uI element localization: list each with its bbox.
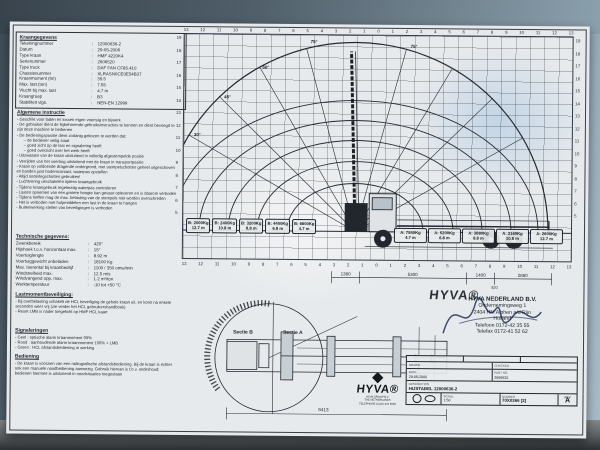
angle-label-45: 45° [224,94,231,99]
drawn-row: DRAWN CHECKED [407,361,577,370]
scale-tick: 4 [434,29,436,34]
rev-cell: REV A [557,394,576,405]
capacity-reach: 8.8 m [241,226,262,232]
dim-1380: 1380 [341,271,352,276]
capacity-reach: 10.8 m [214,226,235,232]
row-label: Werktemperatuur [15,282,87,289]
scale-label: SCALE [444,394,498,399]
revision-cell [520,357,577,362]
scale-tick: 9 [505,30,507,35]
scale-tick: 10 [233,27,238,32]
scale-tick: 6 [463,29,465,34]
scale-tick: 4 [432,263,434,268]
scale-tick: 10 [231,261,236,266]
row-value: -10 tot +50 °C [93,283,120,289]
scale-tick: 4 [321,28,323,33]
scale-tick: 9 [176,160,181,165]
scale-value: 1:50 [443,399,450,403]
scale-tick: 2 [349,28,351,33]
scale-tick: 8 [574,176,579,181]
capacity-reach: 10.8 m [498,236,527,242]
crane-data-rows: Tekeningnummer : 12000636-2 Datum : 29-0… [19,41,183,107]
scale-tick: 13 [575,113,580,118]
scale-tick: 11 [575,138,580,143]
angle-label-30: 30° [194,132,201,137]
scale-tick: 7 [477,30,479,35]
crane-data-row: Stabiliteit vlgs. : NEN-EN 12999 [19,100,182,107]
scale-tick: 17 [575,63,580,68]
hyva-logo-watermark: HYVA® [429,287,480,302]
scale-tick: 8 [175,172,180,177]
scale-tick: 12 [552,30,557,35]
scale-tick: 13 [567,264,572,269]
scale-tick: 10 [517,264,522,269]
scale-tick: 5 [448,29,450,34]
scale-tick: 12 [200,27,205,32]
scale-tick: 1 [390,263,392,268]
scale-tick: 10 [575,151,580,156]
operation-item: De kraan is voorzien van een radiografis… [15,361,177,378]
revision-cell [463,356,520,361]
scale-tick: 16 [575,76,580,81]
scale-tick: 11 [215,261,220,266]
checked-label: CHECKED [494,364,575,369]
hyva-address-block: HYVA® HYVA NEDERLAND B.V. Ondernemingswe… [427,287,578,354]
capacity-box-b: B: 4400Kg 6.8 m [265,219,290,234]
capacity-box-b: B: 3200Kg 8.8 m [239,218,264,233]
scale-tick: 1 [361,263,363,268]
lmb-list: Bij overbelasting schakelt de HCL beveil… [15,299,177,316]
capacity-box-a: A: 5200Kg 6.8 m [428,228,461,243]
scale-tick: 7 [175,185,180,190]
technical-data: Technische gegevens: Zwenkbereik : 420° … [15,234,177,290]
scale-tick: 9 [503,264,505,269]
scale-tick: 13 [182,261,187,266]
capacity-box-a: A: 7550Kg 4.7 m [394,228,427,243]
photo-of-crane-load-plate: Kraangegevens Tekeningnummer : 12000636-… [0,0,600,450]
part-cell: PART NO. 2606520 [491,370,577,382]
scale-tick: 19 [177,35,182,40]
title-block: DRAWN CHECKED DATE 29-05-2006 PART NO. 2… [405,355,577,407]
scale-tick: 3 [420,29,422,34]
capacity-reach: 12.7 m [188,225,209,231]
scale-tick: 3 [418,263,420,268]
drawn-label: DRAWN [409,363,490,368]
dim-2860: 2860 [518,273,529,278]
hyva-emblem-icon [372,372,383,383]
load-chart-grid: 30° 45° 60° 75° 75° B: 2000Kg 12.7 m B: … [182,33,574,262]
bottom-row: SCALE 1:50 NUMBER 70X0366 [2] REV A [406,392,576,405]
scale-tick: 0 [377,29,379,34]
scale-tick: 8 [489,264,491,269]
rev-value: A [565,398,570,405]
capacity-row-b: B: 2000Kg 12.7 m B: 2400Kg 10.8 m B: 320… [186,218,317,234]
angle-label-75-right: 75° [411,44,418,49]
scale-tick: 19 [576,38,581,43]
description-row: DESCRIPTION HIJSTABEL 12000636-2 [407,380,577,393]
date-cell: DATE 29-05-2006 [407,369,492,381]
scale-tick: 10 [519,30,524,35]
scale-tick: 14 [176,97,181,102]
scale-tick: 9 [248,262,250,267]
scale-tick: 11 [176,135,181,140]
scale-tick: 5 [574,213,579,218]
general-instructions-list: Geschikt voor laden en lossen eigen voer… [16,117,179,212]
number-value: 70X0366 [2] [502,398,526,403]
capacity-box-a: A: 2600Kg 12.7 m [530,229,563,244]
dim-5300: 5300 [408,272,419,277]
dim-1400: 1400 [476,273,487,278]
scale-cell: SCALE 1:50 [440,393,499,405]
sectie-b-label: Sectie B [233,329,253,335]
capacity-box-a: A: 3160Kg 10.8 m [496,229,529,244]
signals-section: Signaleringen Geel : optische alarm kraa… [15,328,177,352]
logo-sub3: TELEPHONE (31)10 419 6666 [350,402,404,406]
scale-tick: 16 [176,72,181,77]
operation-section: Bediening De kraan is voorzien van een r… [15,354,177,378]
scale-tick: 12 [176,122,181,127]
address-line: Telefax 0172-41 52 62 [427,329,577,337]
dim-8413: 8413 [318,407,329,412]
scale-tick: 12 [550,264,555,269]
scale-tick: 12 [198,261,203,266]
angle-label-75-left: 75° [311,39,318,44]
scale-tick: 7 [475,264,477,269]
capacity-reach: 4.7 m [396,235,425,241]
scale-tick: 0 [375,263,377,268]
scale-tick: 5 [304,262,306,267]
scale-tick: 6 [292,28,294,33]
scale-tick: 12 [575,126,580,131]
scale-tick: 8 [491,30,493,35]
scale-tick: 6 [290,262,292,267]
projection-symbol-icon [412,394,421,403]
scale-tick: 13 [176,110,181,115]
signals-list: Geel : optische alarm kraanmoment 90%Roo… [15,335,177,352]
scale-tick: 11 [536,30,541,35]
load-chart-sheet: Kraangegevens Tekeningnummer : 12000636-… [6,21,590,438]
row-value: NEN-EN 12999 [97,100,127,106]
scale-tick: 8 [262,262,264,267]
load-moment-protection: Lastmomentbeveiliging: Bij overbelasting… [15,292,177,316]
scale-tick: 5 [446,263,448,268]
row-label: Stabiliteit vlgs. [19,100,91,107]
scale-tick: 7 [278,28,280,33]
scale-tick: 6 [460,263,462,268]
checked-cell: CHECKED [491,363,577,370]
operation-list: De kraan is voorzien van een radiografis… [15,361,177,378]
date-row: DATE 29-05-2006 PART NO. 2606520 [407,368,577,381]
hyva-logo-block: HYVA® HYVA GROUP B.V. THE NETHERLANDS TE… [350,372,404,424]
side-view-dimensions: 1380 5300 1400 2860 820 [181,267,571,290]
scale-tick: 14 [575,101,580,106]
capacity-reach: 6.8 m [430,236,459,242]
scale-tick: 6 [574,201,579,206]
angle-label-60: 60° [262,65,269,70]
scale-tick: 9 [575,163,580,168]
sectie-a-label: Sectie A [283,330,303,336]
scale-tick: 5 [306,28,308,33]
scale-tick: 2 [406,29,408,34]
scale-tick: 2 [404,263,406,268]
hyva-logo-text: HYVA® [350,383,405,395]
scale-tick: 3 [333,262,335,267]
capacity-row-a: A: 7550Kg 4.7 m A: 5200Kg 6.8 m A: 3880K… [394,228,563,244]
scale-tick: 7 [276,262,278,267]
projection-symbol-icon [424,395,435,402]
capacity-reach: 8.8 m [464,236,493,242]
capacity-box-b: B: 6600Kg 4.7 m [292,219,317,234]
drawn-cell: DRAWN [407,362,492,369]
technical-data-rows: Zwenkbereik : 420° Hijshoek t.o.v. horiz… [15,241,177,290]
scale-tick: 2 [347,262,349,267]
revision-cell [407,356,463,361]
scale-tick: 13 [184,27,189,32]
projection-cell [406,393,440,404]
part-value: 2606520 [494,376,508,380]
scale-tick: 17 [176,60,181,65]
scale-tick: 6 [175,197,180,202]
scale-tick: 4 [319,262,321,267]
scale-tick: 5 [175,210,180,215]
capacity-box-a: A: 3880Kg 8.8 m [462,228,495,243]
scale-tick: 8 [264,28,266,33]
scale-tick: 1 [392,29,394,34]
scale-tick: 15 [176,85,181,90]
scale-tick: 11 [217,27,222,32]
address-lines: Ondernemingsweg 12404 HM Alphen a/d Rijn… [427,302,577,336]
scale-tick: 18 [177,47,182,52]
scale-tick: 13 [569,30,574,35]
scale-tick: 3 [335,28,337,33]
number-cell: NUMBER 70X0366 [2] [499,394,558,406]
capacity-reach: 6.8 m [267,226,288,232]
description-cell: DESCRIPTION HIJSTABEL 12000636-2 [407,381,577,393]
crane-data-panel: Kraangegevens Tekeningnummer : 12000636-… [15,32,187,110]
capacity-reach: 12.7 m [532,236,561,242]
date-value: 29-05-2006 [409,375,427,379]
capacity-box-b: B: 2400Kg 10.8 m [212,218,237,233]
scale-tick: 10 [176,147,181,152]
capacity-reach: 4.7 m [294,226,315,232]
scale-tick: 1 [363,29,365,34]
general-instructions: Algemene instructie Geschikt voor laden … [16,110,179,212]
scale-tick: 18 [576,51,581,56]
description-value: HIJSTABEL 12000636-2 [409,386,458,391]
capacity-box-b: B: 2000Kg 12.7 m [186,218,211,233]
scale-tick: 9 [250,28,252,33]
scale-tick: 7 [574,188,579,193]
scale-tick: 15 [575,88,580,93]
scale-tick: 11 [534,264,539,269]
